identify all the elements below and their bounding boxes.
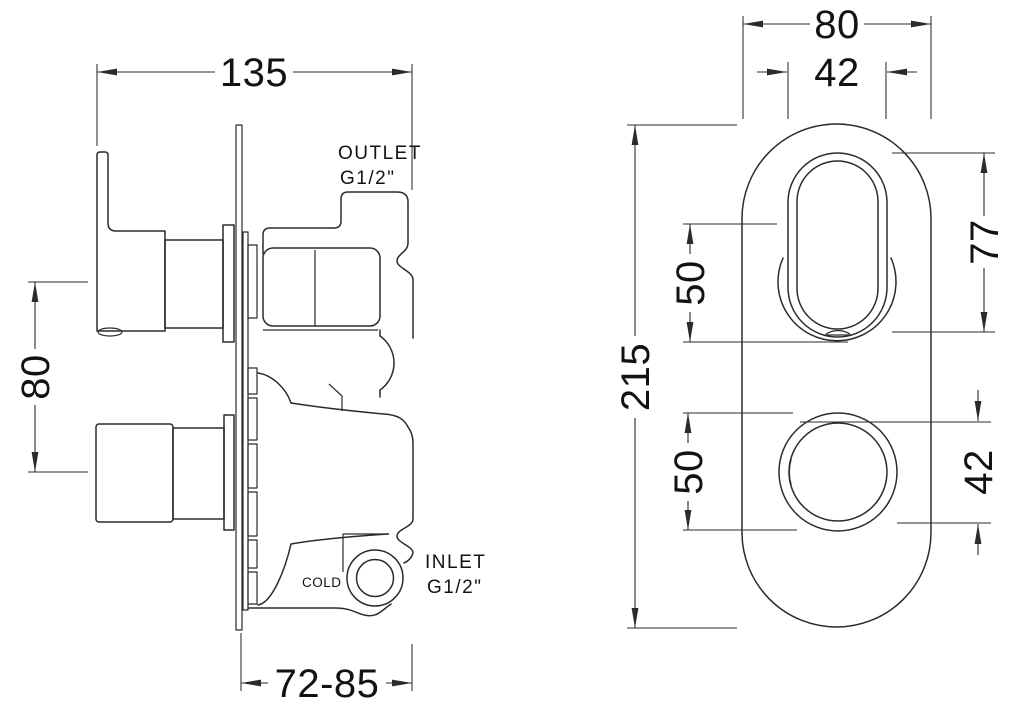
inlet-port-inner <box>357 560 394 597</box>
gasket-stack <box>248 245 257 604</box>
mounting-rail <box>243 232 248 610</box>
cartridge-block <box>263 248 380 326</box>
faceplate <box>742 124 931 627</box>
knob-handle <box>96 424 173 522</box>
dim-side-handle-spacing: 80 <box>14 354 58 400</box>
dim-front-slot-width: 42 <box>814 51 860 95</box>
upper-stem <box>165 240 223 328</box>
lower-flange <box>224 415 234 530</box>
inlet-label: INLET <box>425 552 486 573</box>
lever-slot-inner <box>797 161 878 329</box>
outlet-label: OUTLET <box>338 143 422 164</box>
side-view: 135 80 72-85 OUTLET G1/2" INLET G1/2" CO… <box>14 50 486 706</box>
front-view: 80 42 215 50 50 77 42 <box>614 2 1007 628</box>
handle-end-detail <box>98 328 122 336</box>
drawing-canvas: 135 80 72-85 OUTLET G1/2" INLET G1/2" CO… <box>0 0 1024 713</box>
valve-body-lower-bottom <box>258 534 388 605</box>
valve-body-upper <box>263 192 413 338</box>
dim-side-depth-range: 72-85 <box>275 662 380 706</box>
housing-bulge <box>380 330 394 397</box>
cold-label: COLD <box>302 575 342 590</box>
dim-front-knob-diameter: 42 <box>957 449 1001 495</box>
valve-body-lower <box>258 373 413 563</box>
wall-plate-edge <box>236 125 242 630</box>
dim-front-lower-offset: 50 <box>667 449 711 495</box>
dim-front-plate-height: 215 <box>614 343 658 411</box>
knob-ring-outer <box>779 413 897 531</box>
knob-ring-inner <box>789 423 887 521</box>
upper-flange <box>223 225 234 342</box>
dim-front-plate-width: 80 <box>814 3 860 47</box>
knob-inner-detail <box>789 459 791 485</box>
outlet-thread-label: G1/2" <box>340 168 395 189</box>
dim-front-upper-offset: 50 <box>669 260 713 306</box>
dim-side-width: 135 <box>220 51 288 95</box>
lower-stem <box>173 428 224 519</box>
slot-bottom-detail <box>824 331 852 336</box>
inlet-thread-label: G1/2" <box>427 577 482 598</box>
lever-handle <box>97 152 165 331</box>
bracket-detail <box>329 384 342 411</box>
inlet-port-outer <box>347 550 403 606</box>
dim-front-slot-height: 77 <box>963 219 1007 265</box>
technical-drawing: 135 80 72-85 OUTLET G1/2" INLET G1/2" CO… <box>0 0 1024 713</box>
